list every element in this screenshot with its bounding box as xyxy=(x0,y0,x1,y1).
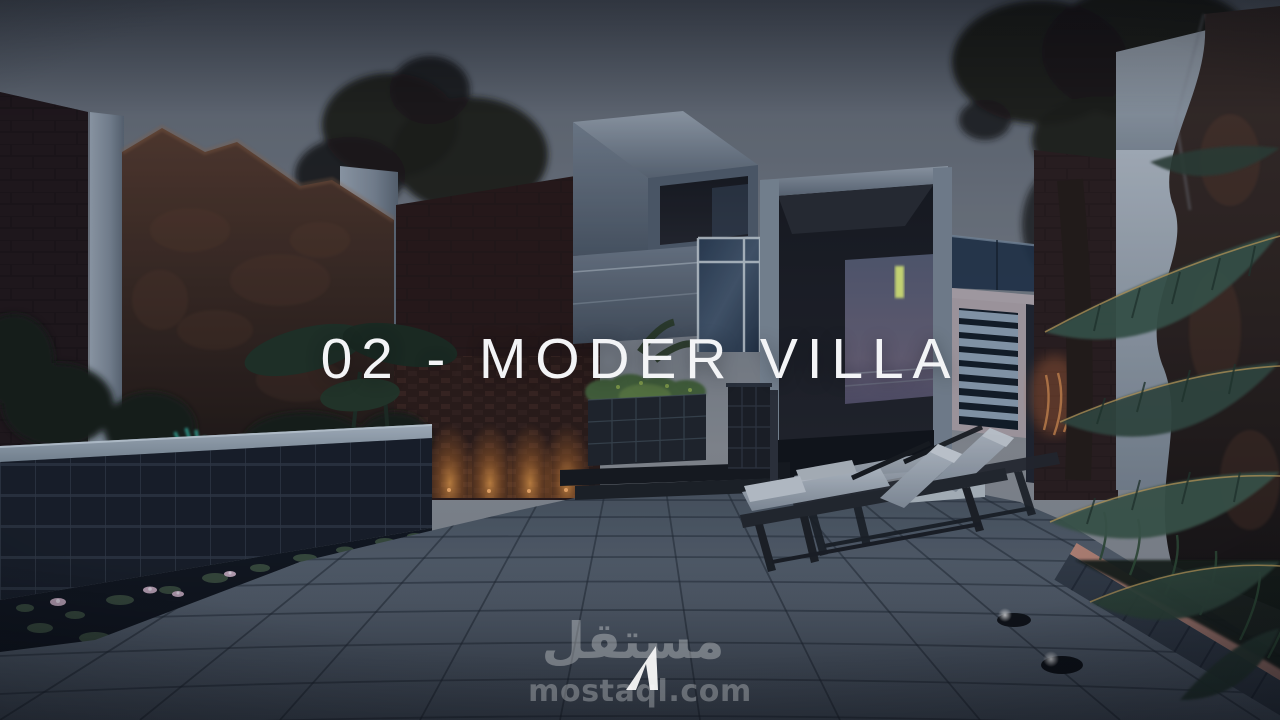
slide-title: 02 - MODER VILLA xyxy=(0,326,1280,392)
entry-door xyxy=(726,383,772,468)
vertical-light-strip xyxy=(895,266,904,298)
villa-left-box xyxy=(573,111,760,352)
villa-render-image: 02 - MODER VILLA مستقل mostaql.com xyxy=(0,0,1280,720)
